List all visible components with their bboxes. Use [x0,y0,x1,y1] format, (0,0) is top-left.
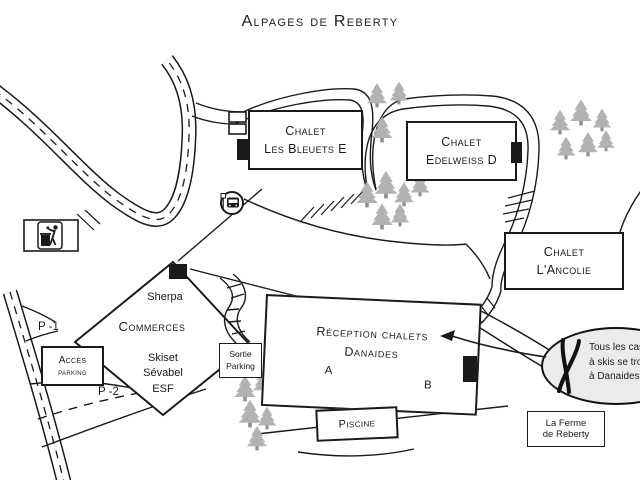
pine-tree-icon [247,426,267,450]
chalet-edelweiss: Chalet Edelweiss D [406,121,517,181]
reception-danaides: Réception chalets Danaides A B [261,294,482,416]
slope-hatching [301,191,363,221]
pine-tree-icon [239,400,262,428]
pine-tree-icon [570,99,592,125]
pool-label: Piscine [338,417,375,431]
farm-line2: de Reberty [543,429,589,440]
chalet-les-bleuets: Chalet Les Bleuets E [248,110,363,170]
chalet-lancolie-line1: Chalet [544,243,584,261]
service-esf: ESF [118,382,208,397]
pine-tree-icon [391,204,410,227]
callout-line2: à skis se trouv [589,356,640,371]
chalet-les-bleuets-line1: Chalet [285,122,325,140]
parking-level-1-label: P -1 [38,321,59,333]
parking-exit: Sortie Parking [219,343,262,378]
reception-title: Réception chalets Danaides [315,322,429,366]
crossed-skis-icon [551,337,589,395]
pine-tree-icon [390,82,409,105]
resort-map: Alpages de Reberty Chalet Les Bleuets E … [0,0,640,480]
pine-tree-icon [234,375,256,401]
main-road [0,60,189,219]
parking-exit-line2: Parking [226,361,255,373]
parking-exit-line1: Sortie [229,349,251,361]
pine-tree-icon [258,407,277,430]
building-b-label: B [424,379,432,391]
pool: Piscine [315,406,398,442]
farm-line1: La Ferme [546,418,587,429]
services-label: Skiset Sévabel ESF [118,351,208,397]
parking-access-line2: parking [58,367,87,378]
ski-lockers-callout: Tous les casie à skis se trouv à Danaide… [541,327,640,405]
service-sevabel: Sévabel [118,366,208,381]
chalet-les-bleuets-line2: Les Bleuets E [264,140,347,158]
parking-access: Accès parking [41,346,104,386]
pine-tree-icon [394,182,414,206]
map-title: Alpages de Reberty [0,13,640,31]
commerces-label: Commerces [102,319,202,334]
balloon-leaders [471,309,551,370]
chalet-lancolie: Chalet L'Ancolie [504,232,624,290]
chalet-lancolie-line2: L'Ancolie [537,261,592,279]
callout-line3: à Danaides [589,370,640,385]
pine-tree-icon [367,83,387,107]
ferme-de-reberty: La Ferme de Reberty [527,411,605,447]
trash-icon [24,210,100,251]
service-skiset: Skiset [118,351,208,366]
pine-tree-icon [578,132,598,156]
chalet-edelweiss-line1: Chalet [441,133,481,151]
parking-level-2-label: P -2 [98,386,119,398]
pine-tree-icon [557,137,576,160]
callout-line1: Tous les casie [589,341,640,356]
pine-tree-icon [375,171,398,199]
chalet-edelweiss-line2: Edelweiss D [426,151,497,169]
pine-tree-icon [597,130,615,151]
pine-tree-icon [593,109,612,132]
pine-tree-icon [371,203,393,229]
parking-access-line1: Accès [59,354,87,367]
bus-stop-icon [221,192,243,214]
sherpa-store-label: Sherpa [130,291,200,303]
pine-tree-icon [550,110,570,134]
building-a-label: A [324,365,332,377]
ski-lockers-text: Tous les casie à skis se trouv à Danaide… [589,341,640,385]
